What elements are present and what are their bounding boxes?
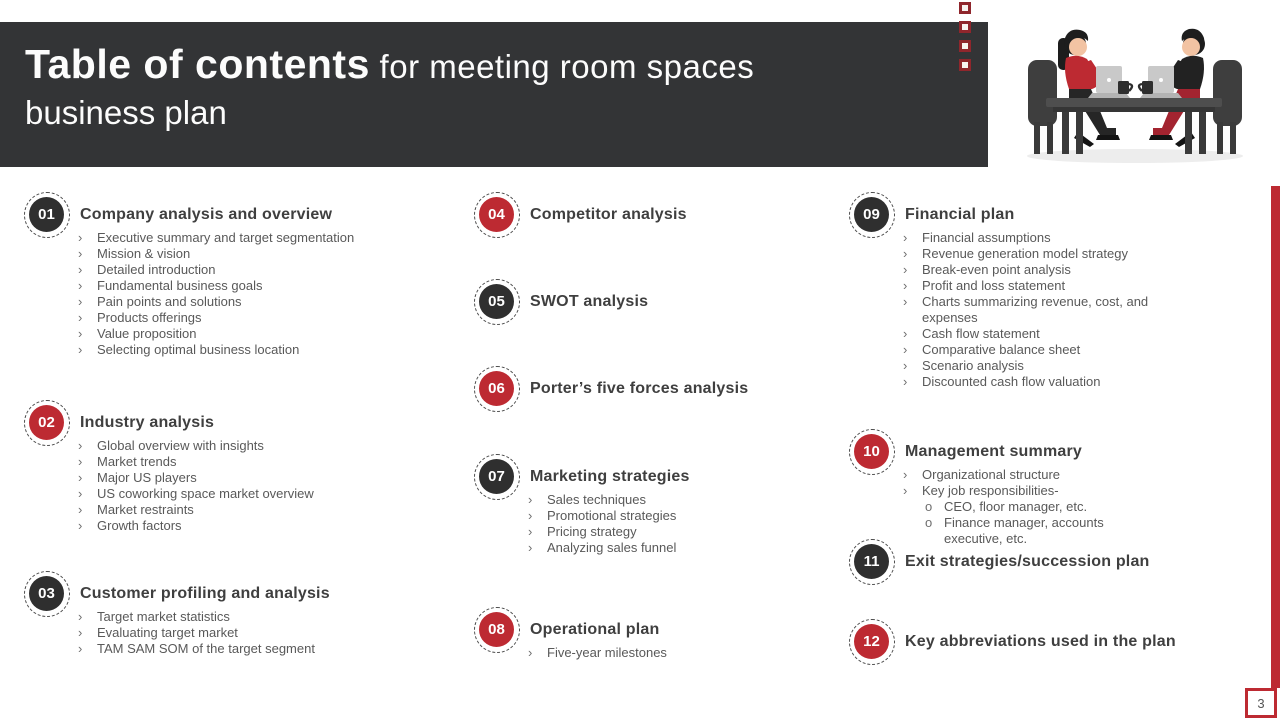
bullet-text: Organizational structure	[922, 467, 1060, 483]
bullet-item: ›Value proposition	[78, 326, 460, 342]
section-title: Industry analysis	[80, 405, 214, 441]
bullet-text: Detailed introduction	[97, 262, 216, 278]
chevron-bullet-icon: ›	[78, 470, 97, 486]
chevron-bullet-icon: ›	[528, 540, 547, 556]
bullet-text: Charts summarizing revenue, cost, and ex…	[922, 294, 1165, 326]
section-number-badge: 07	[479, 459, 514, 494]
chevron-bullet-icon: ›	[78, 278, 97, 294]
chevron-bullet-icon: ›	[78, 310, 97, 326]
bullet-text: CEO, floor manager, etc.	[944, 499, 1087, 515]
chevron-bullet-icon: ›	[78, 326, 97, 342]
bullet-item: ›Major US players	[78, 470, 460, 486]
section-number-badge: 06	[479, 371, 514, 406]
section-title: Porter’s five forces analysis	[530, 371, 748, 407]
chevron-bullet-icon: ›	[903, 467, 922, 483]
chevron-bullet-icon: ›	[903, 278, 922, 294]
bullet-text: Major US players	[97, 470, 197, 486]
chevron-bullet-icon: ›	[78, 342, 97, 358]
section-title: Competitor analysis	[530, 197, 687, 233]
bullet-text: Comparative balance sheet	[922, 342, 1080, 358]
circle-bullet-icon: o	[925, 499, 944, 515]
bullet-text: US coworking space market overview	[97, 486, 314, 502]
chevron-bullet-icon: ›	[903, 246, 922, 262]
bullet-text: Revenue generation model strategy	[922, 246, 1128, 262]
bullet-text: Financial assumptions	[922, 230, 1051, 246]
bullet-text: Finance manager, accounts executive, etc…	[944, 515, 1165, 547]
section-bullets: ›Sales techniques›Promotional strategies…	[528, 492, 840, 556]
page-number: 3	[1257, 696, 1264, 711]
section-number-ring: 09	[849, 192, 895, 238]
chevron-bullet-icon: ›	[903, 358, 922, 374]
chevron-bullet-icon: ›	[78, 262, 97, 278]
chevron-bullet-icon: ›	[78, 502, 97, 518]
section-number-ring: 07	[474, 454, 520, 500]
section-title: Customer profiling and analysis	[80, 576, 330, 612]
bullet-text: Cash flow statement	[922, 326, 1040, 342]
bullet-text: Discounted cash flow valuation	[922, 374, 1101, 390]
chevron-bullet-icon: ›	[903, 230, 922, 246]
section-number-badge: 08	[479, 612, 514, 647]
bullet-item: ›Fundamental business goals	[78, 278, 460, 294]
bullet-item: ›Analyzing sales funnel	[528, 540, 840, 556]
chevron-bullet-icon: ›	[903, 342, 922, 358]
toc-column-3: 09 Financial plan ›Financial assumptions…	[845, 0, 1165, 720]
bullet-item: ›Mission & vision	[78, 246, 460, 262]
bullet-text: Mission & vision	[97, 246, 190, 262]
bullet-text: TAM SAM SOM of the target segment	[97, 641, 315, 657]
bullet-text: Pain points and solutions	[97, 294, 242, 310]
bullet-text: Market trends	[97, 454, 176, 470]
chevron-bullet-icon: ›	[528, 524, 547, 540]
section-number-badge: 01	[29, 197, 64, 232]
section-title: Exit strategies/succession plan	[905, 544, 1150, 580]
section-number-ring: 11	[849, 539, 895, 585]
section-number-ring: 12	[849, 619, 895, 665]
section-title: Marketing strategies	[530, 459, 690, 495]
bullet-item: ›Organizational structure	[903, 467, 1165, 483]
bullet-text: Five-year milestones	[547, 645, 667, 661]
bullet-text: Break-even point analysis	[922, 262, 1071, 278]
chevron-bullet-icon: ›	[78, 246, 97, 262]
bullet-item: ›TAM SAM SOM of the target segment	[78, 641, 460, 657]
section-bullets: ›Financial assumptions›Revenue generatio…	[903, 230, 1165, 390]
section-number-ring: 02	[24, 400, 70, 446]
bullet-item: oCEO, floor manager, etc.	[925, 499, 1165, 515]
bullet-text: Analyzing sales funnel	[547, 540, 676, 556]
section-bullets: ›Global overview with insights›Market tr…	[78, 438, 460, 534]
bullet-text: Market restraints	[97, 502, 194, 518]
section-number-badge: 10	[854, 434, 889, 469]
bullet-item: oFinance manager, accounts executive, et…	[925, 515, 1165, 547]
bullet-text: Evaluating target market	[97, 625, 238, 641]
bullet-text: Pricing strategy	[547, 524, 637, 540]
chevron-bullet-icon: ›	[528, 508, 547, 524]
bullet-item: ›Profit and loss statement	[903, 278, 1165, 294]
bullet-item: ›Promotional strategies	[528, 508, 840, 524]
chevron-bullet-icon: ›	[903, 483, 922, 499]
bullet-text: Executive summary and target segmentatio…	[97, 230, 354, 246]
chevron-bullet-icon: ›	[78, 230, 97, 246]
bullet-item: ›Pain points and solutions	[78, 294, 460, 310]
section-number-badge: 11	[854, 544, 889, 579]
section-title: Company analysis and overview	[80, 197, 332, 233]
bullet-text: Promotional strategies	[547, 508, 676, 524]
toc-column-2: 04 Competitor analysis 05 SWOT analysis …	[470, 0, 840, 720]
bullet-text: Fundamental business goals	[97, 278, 263, 294]
chevron-bullet-icon: ›	[903, 374, 922, 390]
chevron-bullet-icon: ›	[78, 518, 97, 534]
bullet-item: ›Cash flow statement	[903, 326, 1165, 342]
chevron-bullet-icon: ›	[903, 326, 922, 342]
bullet-item: ›Comparative balance sheet	[903, 342, 1165, 358]
bullet-text: Scenario analysis	[922, 358, 1024, 374]
section-number-ring: 06	[474, 366, 520, 412]
bullet-text: Products offerings	[97, 310, 202, 326]
section-number-badge: 02	[29, 405, 64, 440]
chevron-bullet-icon: ›	[78, 625, 97, 641]
bullet-text: Growth factors	[97, 518, 182, 534]
chevron-bullet-icon: ›	[528, 492, 547, 508]
bullet-text: Target market statistics	[97, 609, 230, 625]
chevron-bullet-icon: ›	[903, 294, 922, 326]
section-title: Key abbreviations used in the plan	[905, 624, 1176, 660]
bullet-item: ›Executive summary and target segmentati…	[78, 230, 460, 246]
section-title: Financial plan	[905, 197, 1015, 233]
section-title: Operational plan	[530, 612, 659, 648]
bullet-text: Selecting optimal business location	[97, 342, 299, 358]
bullet-text: Profit and loss statement	[922, 278, 1065, 294]
bullet-item: ›Break-even point analysis	[903, 262, 1165, 278]
bullet-item: ›Evaluating target market	[78, 625, 460, 641]
bullet-item: ›Detailed introduction	[78, 262, 460, 278]
section-title: SWOT analysis	[530, 284, 648, 320]
bullet-text: Global overview with insights	[97, 438, 264, 454]
section-title: Management summary	[905, 434, 1082, 470]
bullet-item: ›Products offerings	[78, 310, 460, 326]
chevron-bullet-icon: ›	[78, 641, 97, 657]
bullet-item: ›Market trends	[78, 454, 460, 470]
bullet-item: ›Sales techniques	[528, 492, 840, 508]
bullet-text: Key job responsibilities-	[922, 483, 1059, 499]
bullet-item: ›Target market statistics	[78, 609, 460, 625]
bullet-item: ›Global overview with insights	[78, 438, 460, 454]
bullet-item: ›Five-year milestones	[528, 645, 840, 661]
bullet-item: ›Pricing strategy	[528, 524, 840, 540]
bullet-text: Value proposition	[97, 326, 197, 342]
bullet-item: ›Scenario analysis	[903, 358, 1165, 374]
section-number-ring: 05	[474, 279, 520, 325]
bullet-item: ›Financial assumptions	[903, 230, 1165, 246]
bullet-item: ›US coworking space market overview	[78, 486, 460, 502]
chevron-bullet-icon: ›	[78, 609, 97, 625]
chevron-bullet-icon: ›	[528, 645, 547, 661]
accent-side-bar	[1271, 186, 1280, 688]
section-number-ring: 10	[849, 429, 895, 475]
chevron-bullet-icon: ›	[78, 294, 97, 310]
page-number-badge: 3	[1245, 688, 1277, 718]
slide: Table of contents for meeting room space…	[0, 0, 1280, 720]
bullet-item: ›Market restraints	[78, 502, 460, 518]
section-bullets: ›Executive summary and target segmentati…	[78, 230, 460, 358]
bullet-item: ›Selecting optimal business location	[78, 342, 460, 358]
chevron-bullet-icon: ›	[78, 486, 97, 502]
section-bullets: ›Organizational structure›Key job respon…	[903, 467, 1165, 547]
bullet-item: ›Charts summarizing revenue, cost, and e…	[903, 294, 1165, 326]
bullet-item: ›Key job responsibilities-	[903, 483, 1165, 499]
section-bullets: ›Five-year milestones	[528, 645, 840, 661]
circle-bullet-icon: o	[925, 515, 944, 547]
bullet-item: ›Growth factors	[78, 518, 460, 534]
chevron-bullet-icon: ›	[903, 262, 922, 278]
section-number-badge: 05	[479, 284, 514, 319]
section-bullets: ›Target market statistics›Evaluating tar…	[78, 609, 460, 657]
bullet-item: ›Discounted cash flow valuation	[903, 374, 1165, 390]
chevron-bullet-icon: ›	[78, 454, 97, 470]
bullet-text: Sales techniques	[547, 492, 646, 508]
bullet-item: ›Revenue generation model strategy	[903, 246, 1165, 262]
section-number-badge: 03	[29, 576, 64, 611]
section-number-ring: 03	[24, 571, 70, 617]
section-number-ring: 08	[474, 607, 520, 653]
section-number-ring: 01	[24, 192, 70, 238]
section-number-ring: 04	[474, 192, 520, 238]
chevron-bullet-icon: ›	[78, 438, 97, 454]
section-number-badge: 09	[854, 197, 889, 232]
section-number-badge: 12	[854, 624, 889, 659]
section-number-badge: 04	[479, 197, 514, 232]
toc-column-1: 01 Company analysis and overview ›Execut…	[20, 0, 460, 720]
